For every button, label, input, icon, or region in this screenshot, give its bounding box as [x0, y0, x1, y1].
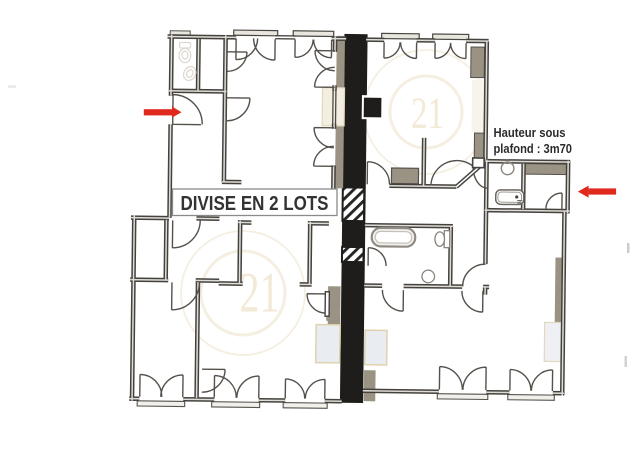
svg-text:21: 21	[240, 262, 280, 325]
svg-text:plafond : 3m70: plafond : 3m70	[494, 141, 573, 156]
svg-text:DIVISE EN 2 LOTS: DIVISE EN 2 LOTS	[181, 192, 329, 215]
svg-text:Hauteur sous: Hauteur sous	[494, 125, 566, 140]
svg-text:21: 21	[411, 89, 444, 138]
